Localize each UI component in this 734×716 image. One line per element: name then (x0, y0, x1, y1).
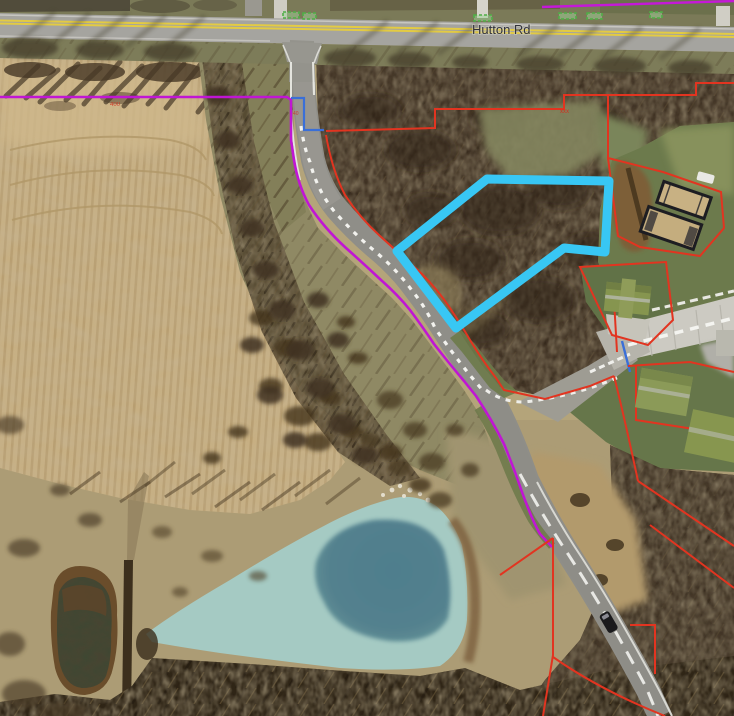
svg-text:400: 400 (110, 102, 121, 108)
svg-text:xxx: xxx (560, 109, 569, 115)
svg-text:40: 40 (293, 111, 299, 117)
svg-text:Hutton Rd: Hutton Rd (472, 22, 531, 37)
